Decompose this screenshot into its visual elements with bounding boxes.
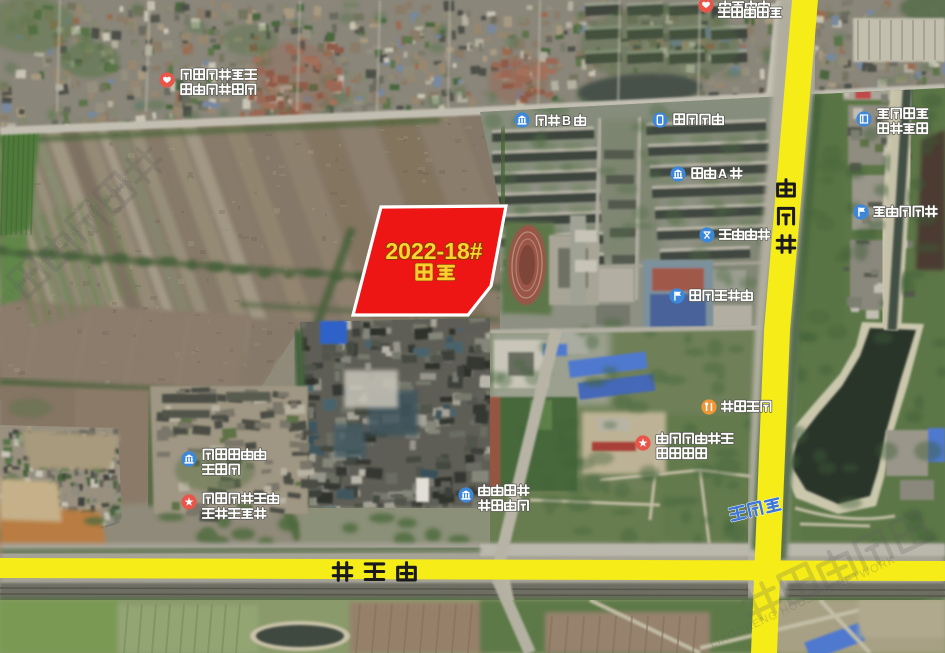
svg-text:A: A <box>718 167 727 181</box>
svg-text:2022-18#: 2022-18# <box>385 238 482 264</box>
svg-text:B: B <box>562 114 571 128</box>
